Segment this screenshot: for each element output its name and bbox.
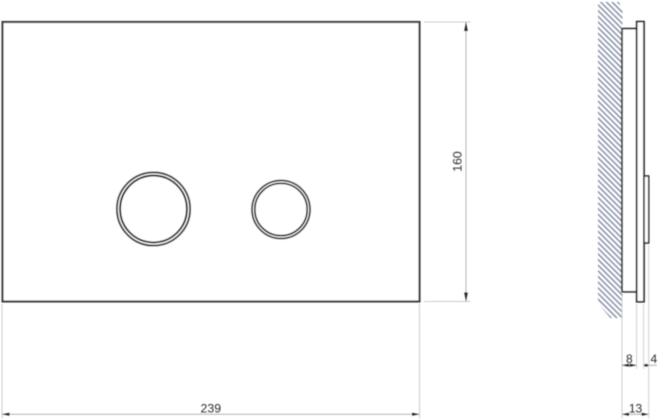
svg-text:239: 239 [201, 401, 222, 415]
svg-text:160: 160 [451, 151, 465, 172]
svg-text:4: 4 [650, 352, 657, 366]
svg-text:13: 13 [629, 401, 643, 415]
svg-text:8: 8 [626, 352, 633, 366]
